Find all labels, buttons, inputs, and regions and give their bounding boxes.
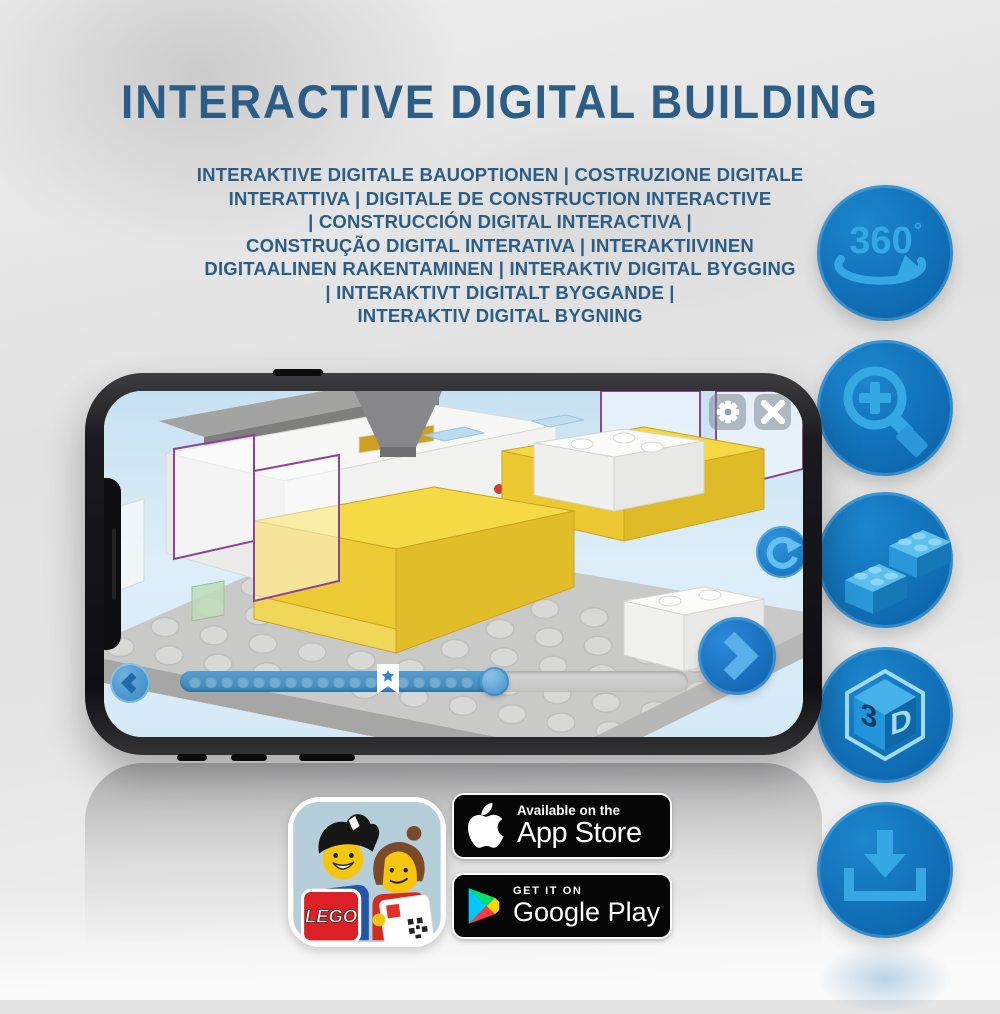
lego-bricks-icon: [817, 492, 953, 628]
download-icon: [817, 802, 953, 938]
phone-mockup: [85, 373, 822, 755]
app-store-badge[interactable]: Available on the App Store: [452, 793, 672, 859]
feature-360-badge: 360 °: [817, 185, 953, 321]
apple-logo-icon: [467, 803, 505, 849]
svg-text:3: 3: [861, 696, 878, 736]
phone-volume-button: [231, 754, 267, 761]
prev-step-button[interactable]: [110, 663, 150, 703]
svg-text:LEGO: LEGO: [305, 906, 358, 927]
play-logo-icon: [467, 887, 501, 925]
rotate-icon: [762, 532, 802, 572]
svg-text:360: 360: [849, 220, 912, 262]
feature-bricks-badge: [817, 492, 953, 628]
progress-thumb[interactable]: [480, 667, 509, 696]
rotate-view-button[interactable]: [756, 526, 803, 578]
lego-logo: LEGO: [303, 890, 360, 942]
chevron-right-icon: [711, 630, 763, 682]
play-tagline: GET IT ON: [513, 886, 660, 898]
settings-button[interactable]: [709, 394, 746, 430]
page-title: INTERACTIVE DIGITAL BUILDING: [30, 74, 970, 129]
app-store-tagline: Available on the: [517, 804, 641, 818]
progress-fill: [180, 671, 495, 692]
close-icon: [761, 400, 785, 424]
next-step-button[interactable]: [698, 617, 776, 695]
phone-notch: [104, 478, 121, 650]
close-button[interactable]: [754, 394, 791, 430]
chevron-left-icon: [119, 672, 141, 694]
play-store-name: Google Play: [513, 898, 660, 926]
scene-green-brick: [192, 581, 224, 621]
app-store-name: App Store: [517, 818, 641, 848]
gear-icon: [715, 399, 741, 425]
progress-bookmark: [377, 664, 399, 695]
feature-download-badge: [817, 802, 953, 938]
feature-zoom-badge: [817, 340, 953, 476]
instruction-booklet: [379, 894, 435, 942]
lego-app-icon: LEGO: [288, 797, 446, 947]
progress-dots: [189, 676, 473, 688]
360-rotation-icon: 360 °: [817, 185, 953, 321]
google-play-badge[interactable]: GET IT ON Google Play: [452, 873, 672, 939]
phone-volume-button: [299, 754, 355, 761]
svg-text:D: D: [890, 701, 912, 742]
circle-reflection: [817, 944, 953, 1014]
zoom-in-icon: [817, 340, 953, 476]
phone-screen: [104, 391, 803, 737]
phone-side-switch: [177, 754, 207, 761]
subtitle-line: INTERAKTIVE DIGITALE BAUOPTIONEN | COSTR…: [0, 163, 1000, 187]
svg-text:°: °: [914, 220, 922, 242]
phone-power-button: [273, 369, 323, 376]
build-progress-slider[interactable]: [180, 671, 688, 692]
feature-3d-badge: 3 D: [817, 647, 953, 783]
3d-cube-icon: 3 D: [817, 647, 953, 783]
